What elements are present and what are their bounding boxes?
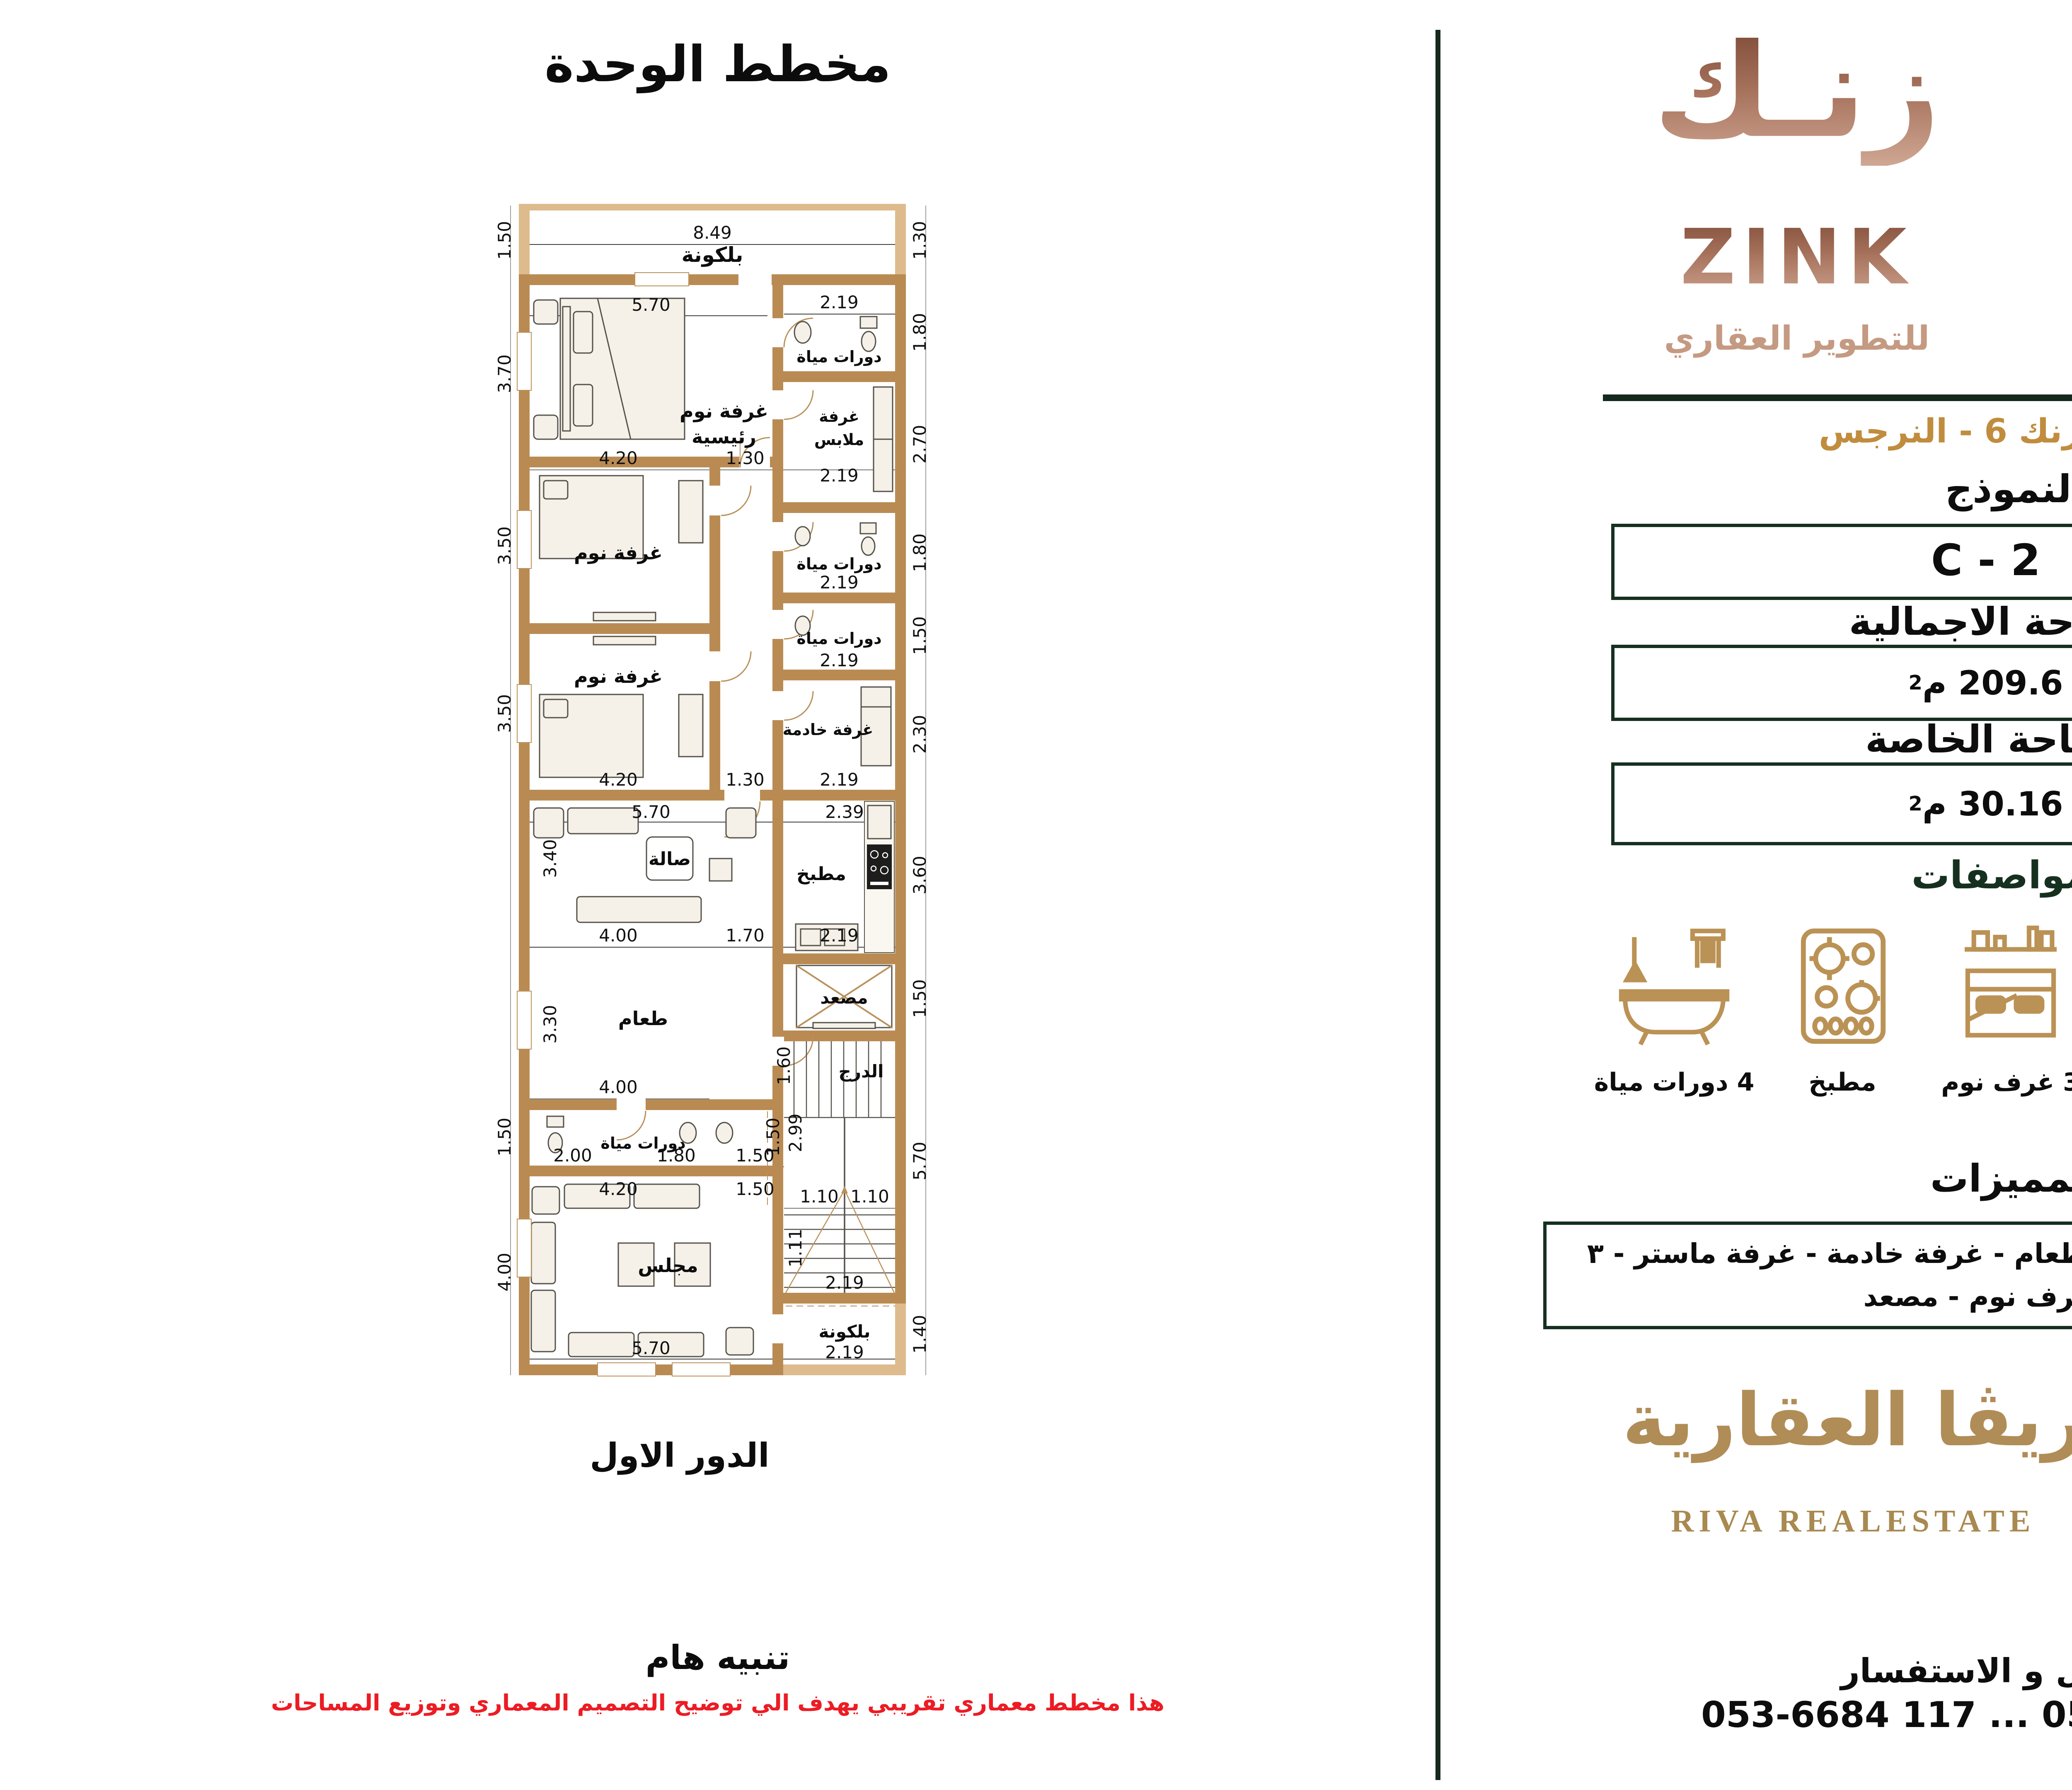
- room-label: بلكونة: [819, 1321, 871, 1342]
- dimension-label: 1.30: [726, 769, 765, 790]
- dimension-label: 2.00: [553, 1145, 592, 1166]
- dimension-label: 2.70: [910, 425, 930, 464]
- total-area-heading: المساحة الاجمالية: [1603, 602, 2072, 645]
- page-title: مخطط الوحدة: [303, 36, 1132, 94]
- dimension-label: 4.00: [494, 1253, 515, 1292]
- dimension-label: 1.50: [910, 979, 930, 1018]
- dimension-label: 4.20: [599, 769, 638, 790]
- riva-logo-latin: RIVA REALESTATE: [1571, 1505, 2072, 1541]
- dimension-label: 5.70: [632, 802, 670, 822]
- dimension-label: 1.50: [910, 616, 930, 655]
- vertical-divider: [1435, 30, 1440, 1780]
- private-area-box: 30.16 م2: [1611, 762, 2072, 845]
- floor-plan-svg: بلكونةغرفة نومرئيسيةدورات مياةغرفةملابسغ…: [494, 196, 942, 1397]
- section-rule: [1603, 394, 2072, 401]
- room-label: مجلس: [638, 1254, 698, 1277]
- room-label: غرفة: [819, 407, 859, 426]
- model-heading: النموذج: [1603, 469, 2072, 512]
- spec-item-bathrooms: 4 دورات مياة: [1591, 925, 1757, 1097]
- model-value-box: C - 2: [1611, 524, 2072, 600]
- spec-item-kitchen: مطبخ: [1760, 925, 1925, 1097]
- features-box: مجلس - صالة - صالة طعام - غرفة خادمة - غ…: [1543, 1222, 2072, 1330]
- dimension-label: 1.50: [494, 221, 515, 260]
- zink-logo-tagline: للتطوير العقاري: [1548, 318, 2045, 358]
- dimension-label: 5.70: [632, 295, 670, 315]
- dimension-label: 2.30: [910, 715, 930, 754]
- spec-label: مطبخ: [1808, 1067, 1876, 1097]
- dimension-label: 4.20: [599, 1179, 638, 1199]
- bathrooms-bathtub-icon: [1613, 925, 1736, 1047]
- spec-item-bedrooms: 3 غرف نوم: [1928, 925, 2072, 1097]
- room-label: الدرج: [839, 1061, 884, 1081]
- dimension-label: 1.80: [910, 313, 930, 352]
- dimension-label: 2.19: [825, 1342, 864, 1362]
- room-label: بلكونة: [682, 243, 743, 267]
- room-label: دورات مياة: [796, 348, 881, 366]
- dimension-label: 3.50: [494, 526, 515, 565]
- room-label: غرفة نوم: [680, 400, 768, 422]
- total-area-value: 209.6: [1958, 663, 2063, 703]
- room-label: مصعد: [820, 987, 868, 1008]
- dimension-label: 1.30: [726, 448, 765, 468]
- features-heading: المميزات: [1603, 1159, 2072, 1202]
- dimension-label: 2.19: [820, 769, 859, 790]
- riva-logo-arabic: ريڤا العقارية: [1571, 1379, 2072, 1463]
- dimension-label: 3.60: [910, 856, 930, 895]
- room-label: دورات مياة: [796, 629, 881, 648]
- dimension-label: 3.50: [494, 694, 515, 733]
- dimension-label: 5.70: [632, 1338, 670, 1358]
- dimension-label: 1.10: [800, 1186, 839, 1207]
- dimension-label: 2.19: [820, 292, 859, 312]
- dimension-label: 1.30: [910, 221, 930, 260]
- contact-phones: 053-6684 117 ... 053-8660 366: [1537, 1696, 2072, 1737]
- dimension-label: 2.39: [825, 802, 864, 822]
- brochure-page: مخطط الوحدة: [0, 0, 2072, 1790]
- dimension-label: 3.70: [494, 354, 515, 393]
- bedrooms-bed-icon: [1949, 925, 2072, 1047]
- total-area-sup: 2: [1909, 671, 1922, 694]
- dimension-label: 2.19: [825, 1272, 864, 1293]
- room-label: غرفة نوم: [574, 542, 663, 564]
- private-area-value: 30.16: [1958, 784, 2063, 824]
- room-label: مطبخ: [796, 864, 846, 885]
- dimension-label: 3.40: [540, 839, 560, 878]
- contact-label: للتواصل و الاستفسار: [1603, 1651, 2072, 1691]
- specs-heading: المواصفات: [1603, 855, 2072, 898]
- dimension-label: 1.10: [850, 1186, 889, 1207]
- dimension-label: 4.00: [599, 925, 638, 946]
- room-label: رئيسية: [692, 426, 756, 448]
- dimension-label: 8.49: [693, 223, 732, 243]
- dimension-label: 1.40: [910, 1315, 930, 1354]
- dimension-label: 4.20: [599, 448, 638, 468]
- zink-logo-arabic: زنـك: [1548, 23, 2045, 165]
- dimension-label: 1.50: [494, 1118, 515, 1156]
- floor-label: الدور الاول: [472, 1435, 887, 1475]
- dimension-label: 2.19: [820, 465, 859, 486]
- private-area-unit: م: [1922, 784, 1947, 824]
- room-label: طعام: [618, 1007, 668, 1030]
- dimension-label: 1.50: [736, 1179, 775, 1199]
- dimension-label: 2.19: [820, 650, 859, 670]
- room-label: غرفة خادمة: [783, 721, 873, 739]
- dimension-label: 1.80: [657, 1145, 696, 1166]
- notice-text: هذا مخطط معماري تقريبي يهدف الي توضيح ال…: [254, 1691, 1182, 1717]
- dimension-label: 1.60: [774, 1046, 794, 1085]
- room-label: صالة: [649, 849, 691, 870]
- zink-logo-latin: ZINK: [1548, 212, 2045, 302]
- dimension-label: 2.19: [820, 925, 859, 946]
- dimension-label: 1.11: [785, 1229, 806, 1268]
- total-area-unit: م: [1922, 663, 1947, 703]
- dimension-label: 1.80: [910, 533, 930, 572]
- dimension-label: 1.70: [726, 925, 765, 946]
- private-area-sup: 2: [1909, 792, 1922, 815]
- notice-title: تنبيه هام: [303, 1638, 1132, 1677]
- dimension-label: 2.19: [820, 572, 859, 593]
- spec-label: 4 دورات مياة: [1594, 1067, 1755, 1097]
- model-value: C - 2: [1931, 537, 2041, 587]
- dimension-label: 1.50: [736, 1145, 775, 1166]
- spec-label: 3 غرف نوم: [1941, 1067, 2072, 1097]
- kitchen-stove-icon: [1781, 925, 1904, 1047]
- room-label: غرفة نوم: [574, 665, 663, 687]
- dimension-label: 4.00: [599, 1077, 638, 1097]
- specs-row: مجلس صالة: [1591, 925, 2072, 1097]
- dimension-label: 3.30: [540, 1005, 560, 1044]
- dimension-label: 5.70: [910, 1142, 930, 1180]
- total-area-box: 209.6 م2: [1611, 645, 2072, 721]
- project-title: مشروع زنك 6 - النرجس: [1603, 411, 2072, 451]
- private-area-heading: المساحة الخاصة: [1603, 719, 2072, 762]
- room-label: ملابس: [814, 431, 864, 449]
- dimension-label: 2.99: [785, 1113, 806, 1152]
- room-label: دورات مياة: [796, 555, 881, 573]
